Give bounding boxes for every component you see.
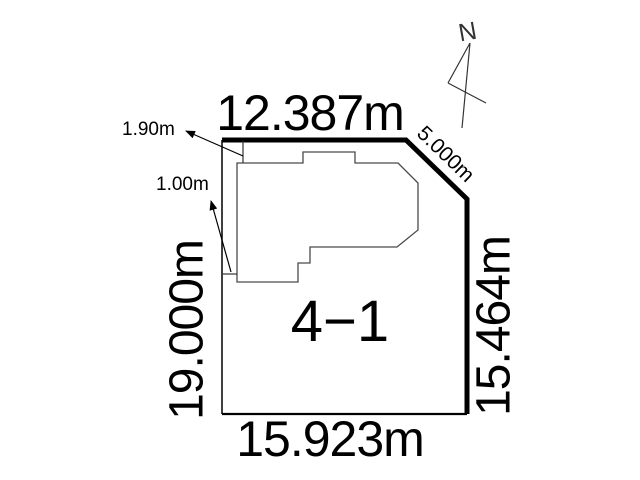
survey-plot-diagram: 12.387m 5.000m 15.464m 15.923m 19.000m 1… bbox=[0, 0, 640, 480]
dimension-label-left: 19.000m bbox=[161, 240, 214, 420]
north-arrow-icon: N bbox=[448, 17, 486, 128]
north-label: N bbox=[456, 17, 479, 48]
dimension-label-top: 12.387m bbox=[216, 85, 404, 141]
building-outline bbox=[237, 152, 418, 282]
setback-label-left: 1.00m bbox=[156, 174, 209, 195]
plot-boundary-thick bbox=[222, 140, 467, 414]
dimension-label-right: 15.464m bbox=[468, 236, 521, 416]
parcel-label: 4−1 bbox=[291, 289, 389, 354]
north-arrow-lines bbox=[448, 43, 486, 128]
leader-arrow-left-setback bbox=[211, 201, 231, 272]
setback-label-top: 1.90m bbox=[122, 119, 175, 140]
dimension-label-bottom: 15.923m bbox=[236, 411, 424, 467]
plot-canvas: 12.387m 5.000m 15.464m 15.923m 19.000m 1… bbox=[0, 0, 640, 480]
